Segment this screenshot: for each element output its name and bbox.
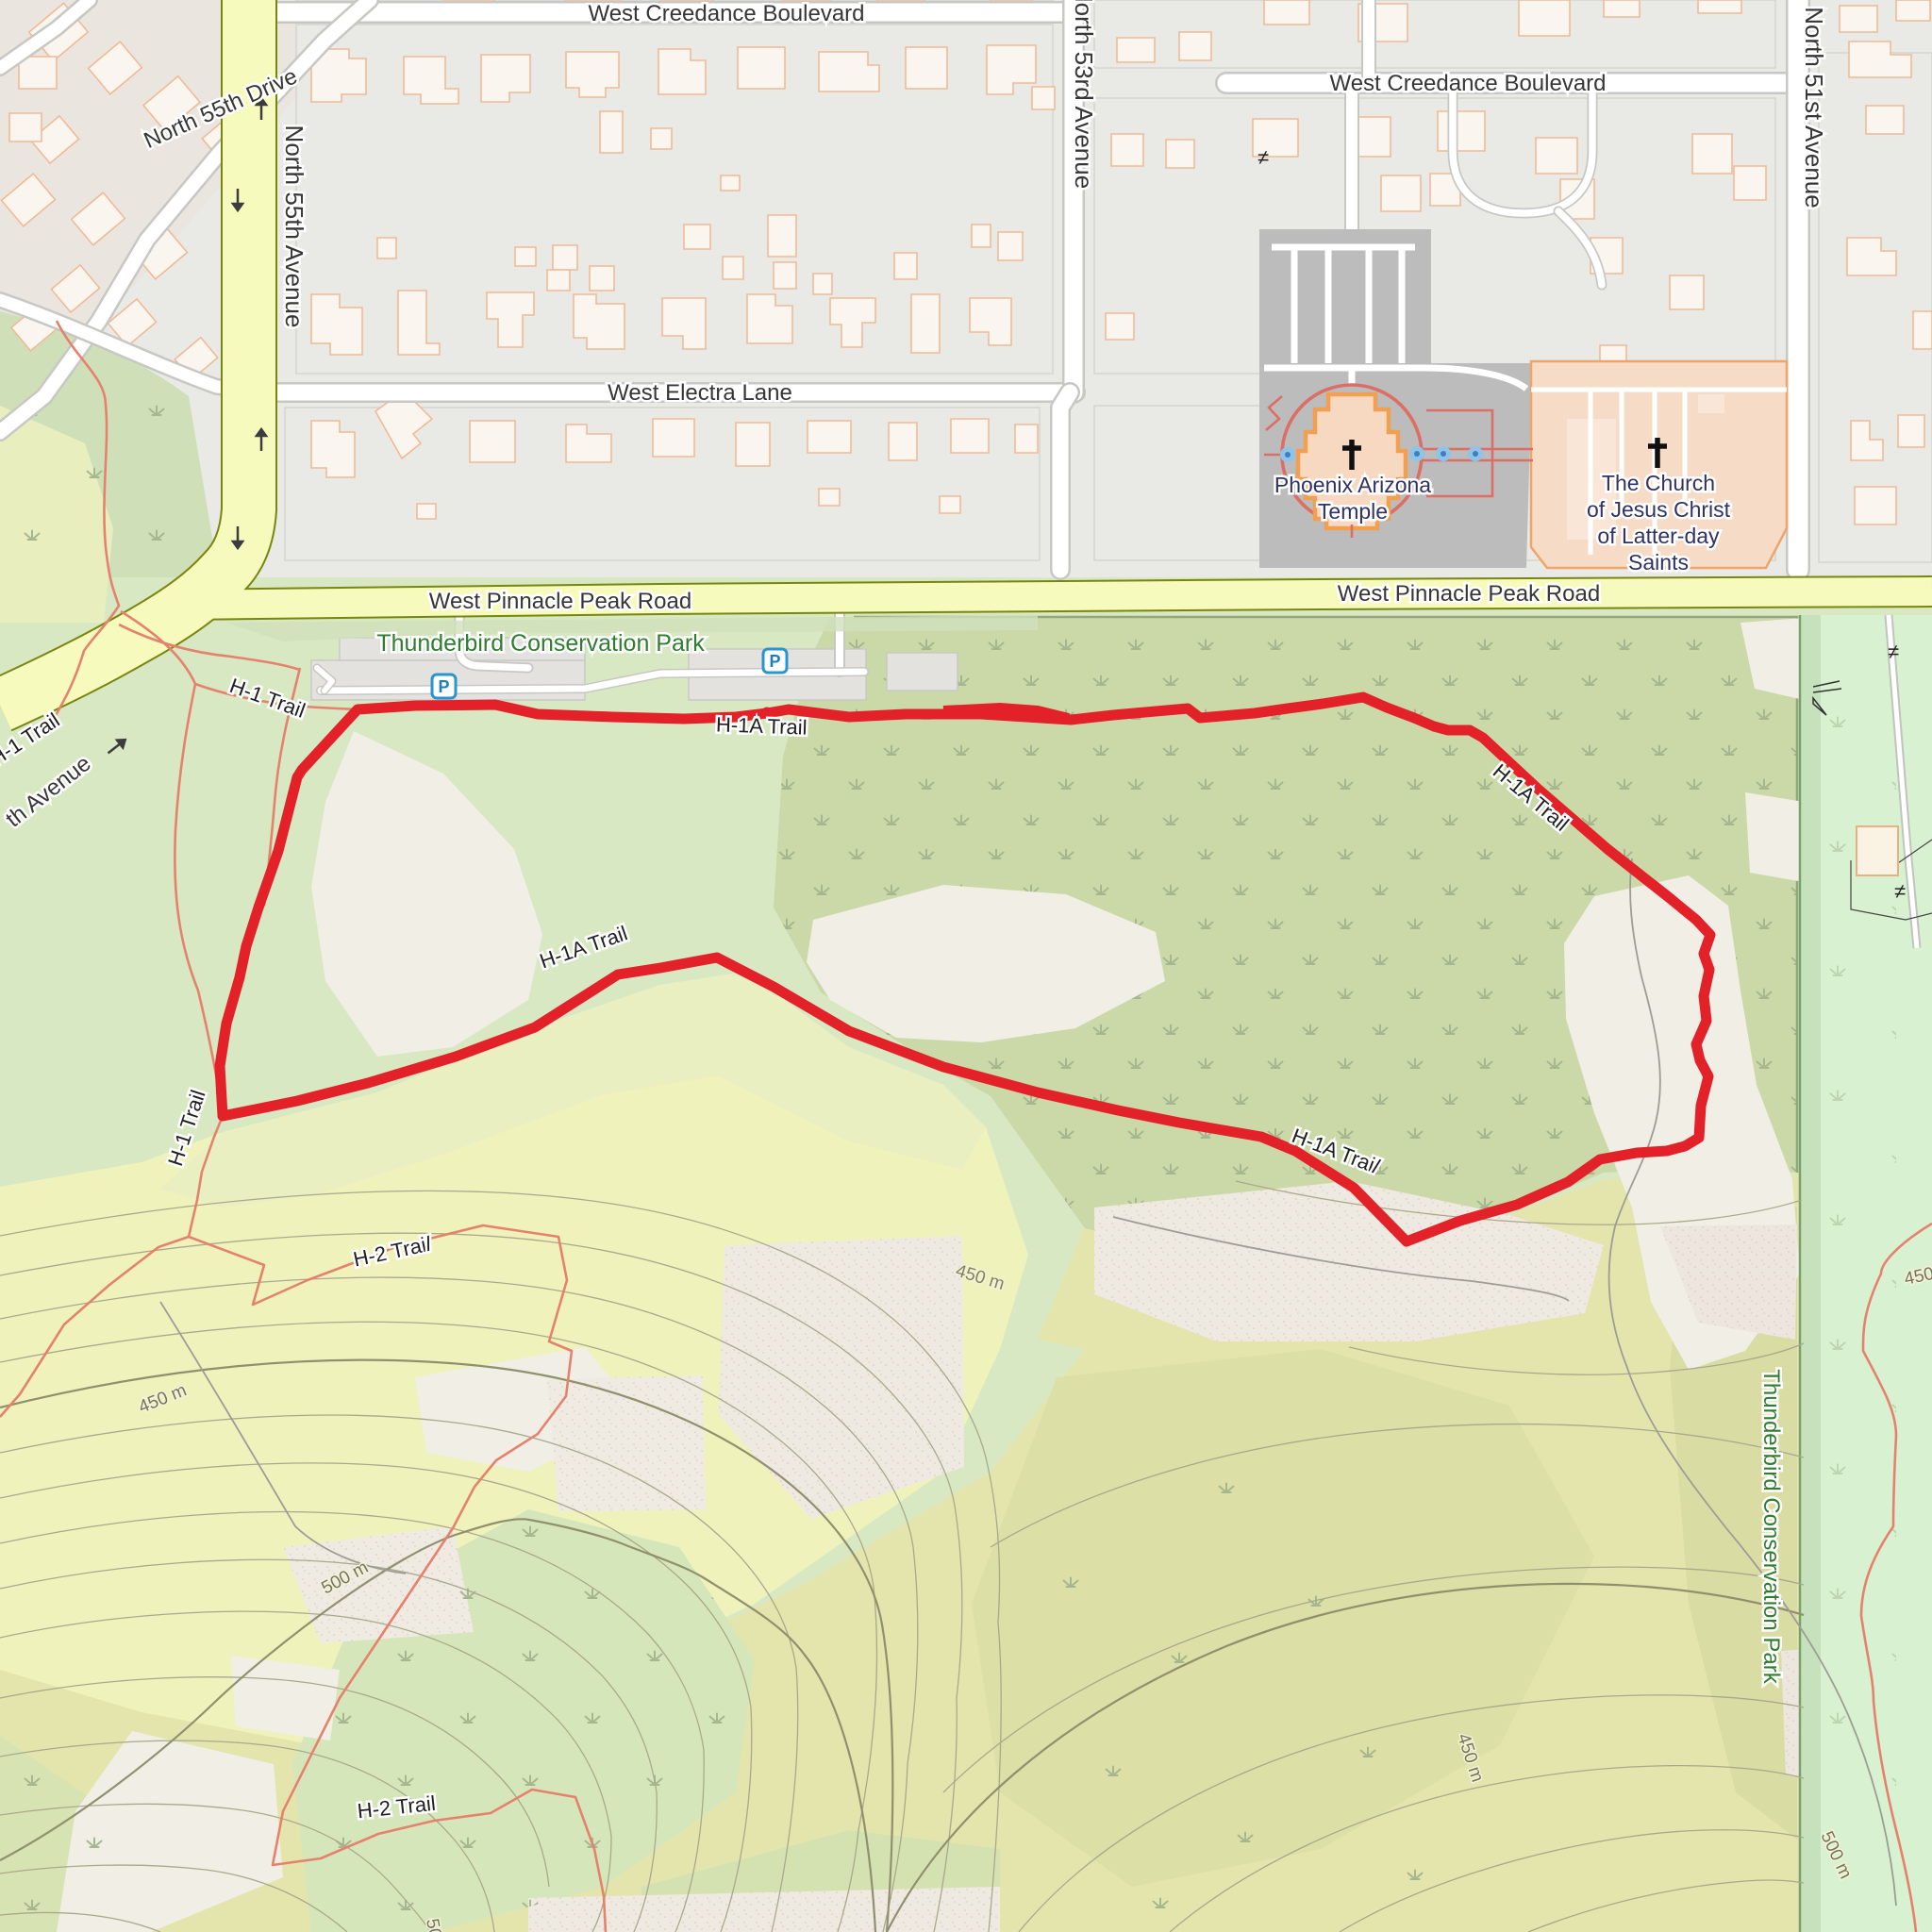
svg-text:≠: ≠: [1894, 879, 1906, 903]
svg-text:of Jesus Christ: of Jesus Christ: [1587, 497, 1731, 522]
svg-text:P: P: [438, 677, 449, 696]
svg-text:Thunderbird Conservation Park: Thunderbird Conservation Park: [1758, 1369, 1784, 1685]
svg-text:≠: ≠: [1257, 145, 1269, 169]
svg-text:Temple: Temple: [1318, 499, 1388, 524]
svg-text:West Pinnacle Peak Road: West Pinnacle Peak Road: [429, 589, 691, 614]
svg-text:North 51st Avenue: North 51st Avenue: [1800, 7, 1828, 208]
svg-text:West Creedance Boulevard: West Creedance Boulevard: [588, 1, 864, 26]
svg-text:P: P: [769, 652, 780, 671]
svg-text:Thunderbird Conservation Park: Thunderbird Conservation Park: [376, 630, 705, 657]
svg-text:H-1A Trail: H-1A Trail: [716, 712, 808, 739]
svg-text:Phoenix Arizona: Phoenix Arizona: [1274, 473, 1431, 497]
svg-text:West Pinnacle Peak Road: West Pinnacle Peak Road: [1338, 581, 1600, 607]
svg-text:West Creedance Boulevard: West Creedance Boulevard: [1329, 71, 1606, 96]
svg-text:North 55th Avenue: North 55th Avenue: [280, 125, 308, 328]
svg-text:Saints: Saints: [1628, 550, 1689, 575]
svg-text:of Latter-day: of Latter-day: [1597, 524, 1720, 548]
svg-text:West Electra Lane: West Electra Lane: [608, 380, 792, 406]
svg-text:≠: ≠: [1888, 640, 1899, 663]
svg-text:North 53rd Avenue: North 53rd Avenue: [1070, 0, 1098, 189]
svg-text:The Church: The Church: [1602, 471, 1715, 495]
